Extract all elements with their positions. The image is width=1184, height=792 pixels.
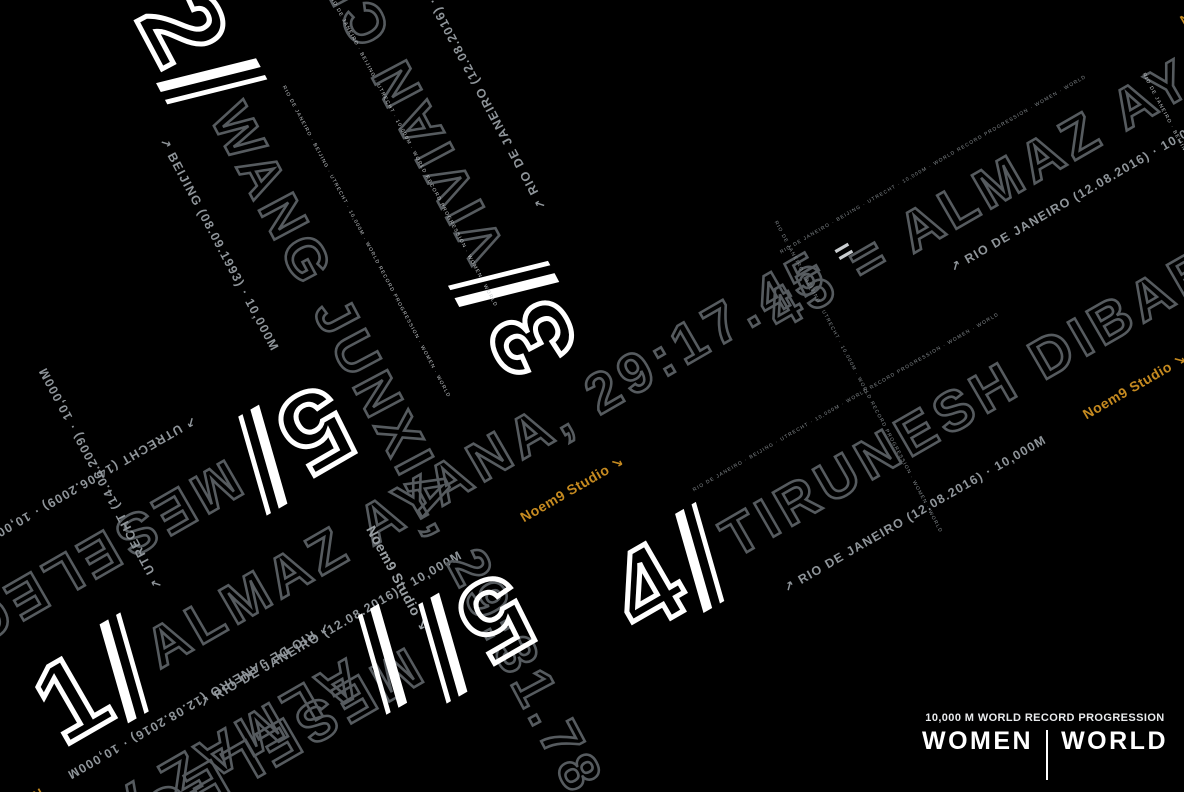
record-line-4: RIO DE JANEIRO · BEIJING · UTRECHT · 10,…: [588, 171, 1184, 671]
studio-credit: Noem9 Studio ↘: [1177, 0, 1184, 29]
record-line-1: 1 ALMAZ AYANA, 29:17.45 = ↗ RIO DE JANEI…: [18, 202, 891, 782]
record-headline: MESELECH MELKAMU,: [0, 451, 251, 792]
record-details: ↗ RIO DE JANEIRO (12.08.2016) · 10,000M: [947, 111, 1184, 274]
separator-bars: [448, 261, 559, 307]
record-line-5-repeat: 5 MESELECH MELKAMU,: [0, 556, 549, 792]
record-details: ↗ RIO DE JANEIRO (12.08.2016) · 10,000M: [197, 547, 465, 710]
record-line-2: RIO DE JANEIRO · BEIJING · UTRECHT · 10,…: [100, 0, 646, 792]
record-details: ↗ RIO DE JANEIRO (12.08.2016) · 10,000M: [64, 620, 332, 783]
record-line-3: 3 VIVIAN CHERUIYOT, ↗ RIO DE JANEIRO (12…: [141, 0, 616, 390]
equals-mark: =: [828, 233, 860, 271]
category-women: WOMEN: [922, 729, 1033, 754]
record-line-1-reversed: ALMAZ AYANA, ↗ RIO DE JANEIRO (12.08.201…: [0, 589, 428, 792]
micro-text: RIO DE JANEIRO · BEIJING · UTRECHT · 10,…: [328, 0, 499, 308]
record-headline: TIRUNESH DIBABA,: [712, 202, 1184, 566]
separator-bars: [358, 604, 407, 715]
utrecht-fragment: ↗ UTRECHT (14.06.2009) · 10,000M: [35, 365, 165, 592]
studio-credit: Noem9 Studio ↘: [362, 523, 432, 634]
record-headline: VIVIAN CHERUIYOT,: [163, 0, 515, 270]
separator-bars: [100, 612, 149, 723]
record-headline: MESELECH MELKAMU,: [0, 639, 431, 792]
record-details: ↗ RIO DE JANEIRO (12.08.2016) · 10,000M: [781, 432, 1049, 595]
studio-credit: Noem9 Studio ↘: [517, 453, 627, 526]
divider-bar: [1046, 730, 1048, 780]
micro-text: RIO DE JANEIRO · BEIJING · UTRECHT · 10,…: [773, 220, 944, 534]
record-headline: WANG JUNXIA, 29:31.78: [201, 95, 614, 792]
studio-credit: Noem9 Studio ↘: [1080, 350, 1184, 423]
rank-number: 1: [17, 634, 127, 762]
rank-number: 2: [119, 0, 247, 81]
record-line-1-repeat: RIO DE JANEIRO · BEIJING · UTRECHT · 10,…: [742, 0, 1184, 365]
rank-number: 3: [468, 284, 596, 392]
category-world: WORLD: [1061, 729, 1168, 754]
micro-text: RIO DE JANEIRO · BEIJING · UTRECHT · 10,…: [281, 85, 452, 399]
separator-bars: [156, 58, 267, 104]
micro-text: RIO DE JANEIRO · BEIJING · UTRECHT · 10,…: [1141, 72, 1184, 386]
record-headline: ALMAZ AYANA,: [0, 650, 371, 792]
poster: 1 ALMAZ AYANA, 29:17.45 = ↗ RIO DE JANEI…: [0, 0, 1184, 792]
micro-text: RIO DE JANEIRO · BEIJING · UTRECHT · 10,…: [692, 312, 1000, 494]
poster-title: 10,000 M WORLD RECORD PROGRESSION: [922, 712, 1168, 724]
rank-number: 5: [261, 366, 371, 494]
record-details: ↗ UTRECHT (14.06.2009) · 10,000M: [0, 413, 199, 551]
separator-bars: [238, 405, 287, 516]
separator-bars: [418, 593, 467, 704]
record-details: ↗ RIO DE JANEIRO (12.08.2016) · 10,000M: [395, 0, 549, 212]
footer: 10,000 M WORLD RECORD PROGRESSION WOMEN …: [922, 712, 1168, 780]
record-details: ↗ UTRECHT (14.06.2009) · 10,000M: [35, 365, 165, 592]
studio-credit: Noem9 Studio ↘: [0, 784, 47, 792]
record-line-5: 5 MESELECH MELKAMU, ↗ UTRECHT (14.06.200…: [0, 348, 369, 792]
record-details: ↗ BEIJING (08.09.1993) · 10,000M: [157, 135, 283, 354]
micro-text: RIO DE JANEIRO · BEIJING · UTRECHT · 10,…: [779, 74, 1087, 256]
record-headline: 45 = ALMAZ AYANA: [756, 0, 1184, 339]
separator-bars: [675, 502, 724, 613]
rank-number: 5: [441, 554, 551, 682]
rank-number: 4: [592, 524, 702, 652]
record-headline: ALMAZ AYANA, 29:17.45: [136, 240, 836, 677]
